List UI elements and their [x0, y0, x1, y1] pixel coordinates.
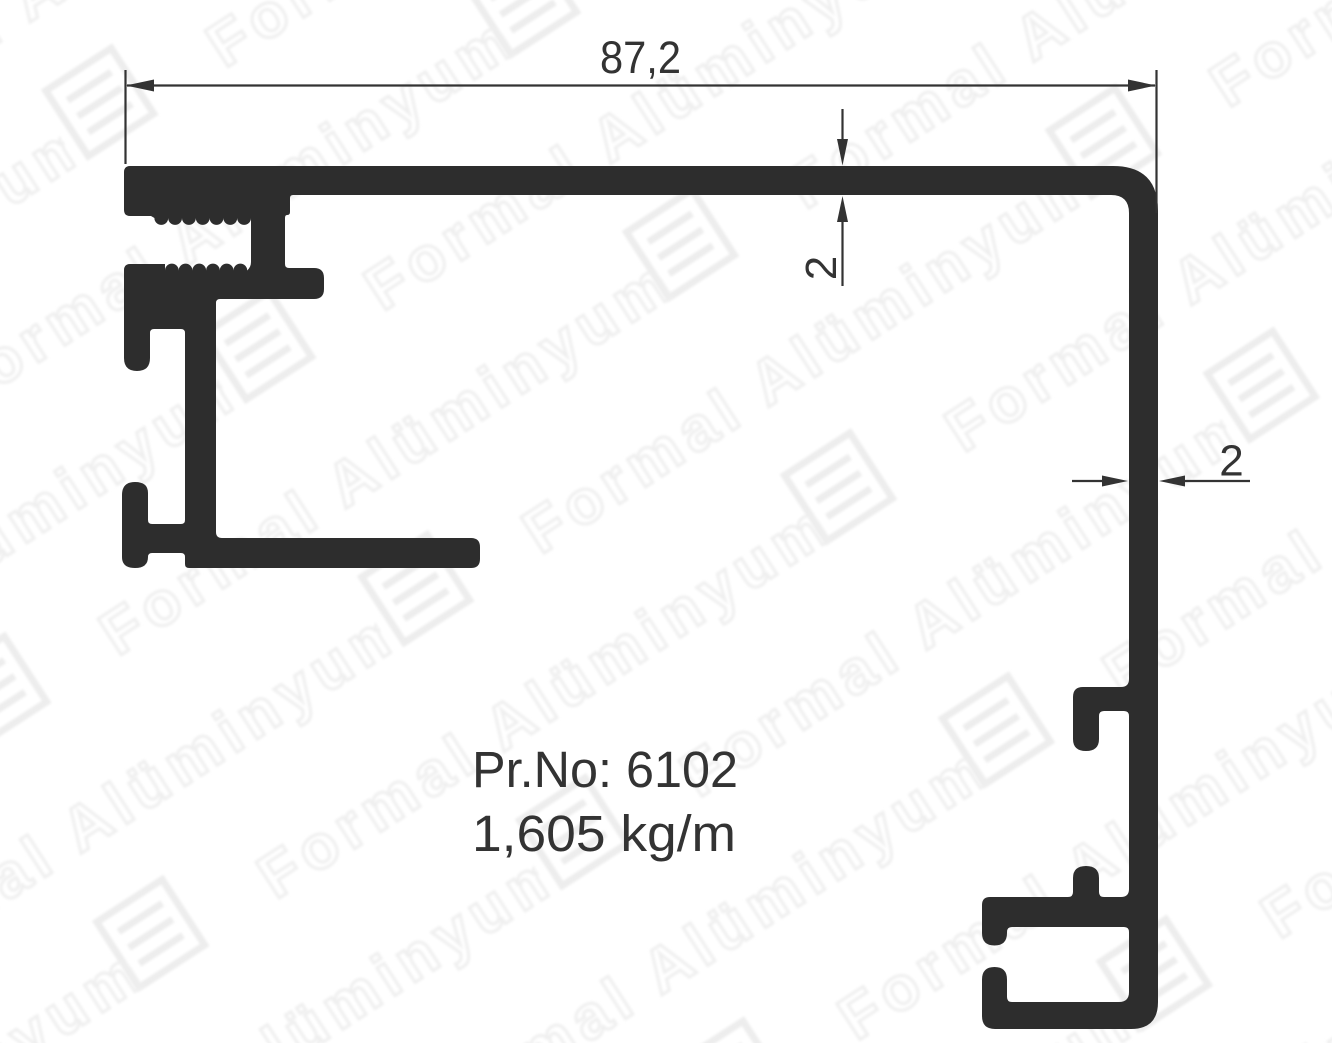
svg-text:87,2: 87,2	[600, 32, 681, 83]
svg-text:1,605 kg/m: 1,605 kg/m	[472, 805, 736, 862]
svg-text:2: 2	[1219, 437, 1243, 486]
svg-text:2: 2	[797, 256, 846, 280]
svg-text:Pr.No: 6102: Pr.No: 6102	[472, 741, 738, 798]
